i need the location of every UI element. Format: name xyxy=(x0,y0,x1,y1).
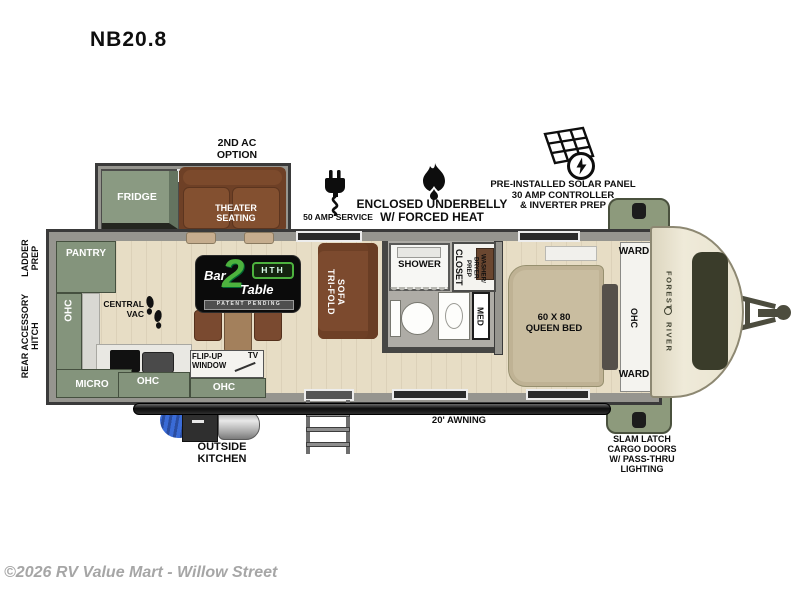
theater-backrest xyxy=(183,170,282,185)
ohc-bottom-label: OHC xyxy=(194,382,254,393)
watermark: ©2026 RV Value Mart - Willow Street xyxy=(4,564,324,582)
entry-step-tread-3 xyxy=(306,442,350,447)
solar-panel-icon xyxy=(531,126,601,182)
shower-label: SHOWER xyxy=(389,260,450,271)
flip-up-window-label: FLIP-UP WINDOW xyxy=(192,353,240,370)
ward-bottom-label: WARD xyxy=(612,369,656,380)
nightstand-top xyxy=(545,246,597,261)
underbelly-label: ENCLOSED UNDERBELLY W/ FORCED HEAT xyxy=(356,198,508,225)
queen-bed-label: 60 X 80 QUEEN BED xyxy=(508,313,600,334)
window-bottom-living xyxy=(392,389,468,400)
tongue-jack-knob xyxy=(776,305,791,320)
theater-label: THEATER SEATING xyxy=(196,203,276,223)
theater-footrest-right xyxy=(244,232,274,244)
plug-icon xyxy=(320,168,350,216)
dinette-chair-left xyxy=(194,310,222,341)
med-label: MED xyxy=(475,298,485,334)
slam-latch-label: SLAM LATCH CARGO DOORS W/ PASS-THRU LIGH… xyxy=(598,434,686,474)
entry-step-tread-2 xyxy=(306,427,350,432)
micro-label: MICRO xyxy=(60,379,124,390)
awning-label: 20' AWNING xyxy=(424,416,494,427)
cargo-door-top-handle xyxy=(632,203,646,219)
bar2table-table: Table xyxy=(240,282,273,297)
window-top-living xyxy=(296,231,362,242)
fridge-label: FRIDGE xyxy=(104,192,170,204)
dinette-chair-right xyxy=(254,310,282,341)
toilet-tank xyxy=(390,300,401,337)
outside-kitchen-handle xyxy=(192,420,204,423)
bar2table-tagline: PATENT PENDING xyxy=(204,300,294,310)
bar2table-hth-badge: HTH xyxy=(252,262,294,279)
washer-dryer-prep-label: WASHER/ DRYER PREP xyxy=(465,245,486,291)
awning-bar xyxy=(133,403,611,415)
outside-kitchen-label: OUTSIDE KITCHEN xyxy=(178,441,266,466)
ohc-step-label: OHC xyxy=(124,376,172,387)
ohc-left-label: OHC xyxy=(63,289,74,333)
page-title: NB20.8 xyxy=(90,28,167,52)
bar2table-logo: Bar 2 Table HTH PATENT PENDING xyxy=(196,256,300,312)
tv-label: TV xyxy=(244,352,262,361)
tri-fold-sofa-label: TRI-FOLD SOFA xyxy=(326,253,346,331)
cargo-door-bottom-handle xyxy=(632,412,646,428)
second-ac-label: 2ND AC OPTION xyxy=(187,138,287,162)
floorplan-page: NB20.8 2ND AC OPTION 50 AMP SERVICE ENCL… xyxy=(0,0,800,600)
footprints-icon xyxy=(144,294,164,334)
bath-sink-basin xyxy=(445,303,463,329)
forest-river-emblem xyxy=(664,307,672,315)
bed-headboard xyxy=(602,284,618,370)
front-window xyxy=(692,252,728,370)
kitchen-sink xyxy=(142,352,174,373)
ohc-bedroom-label: OHC xyxy=(629,300,639,336)
toilet-bowl xyxy=(401,302,434,335)
pantry-label: PANTRY xyxy=(56,248,116,259)
rear-accessory-hitch-label: REAR ACCESSORY HITCH xyxy=(20,286,40,386)
theater-footrest-left xyxy=(186,232,216,244)
ward-top-label: WARD xyxy=(612,246,656,257)
shower-skylight xyxy=(397,247,441,258)
closet-label: CLOSET xyxy=(454,245,464,289)
window-bottom-bedroom xyxy=(526,389,590,400)
central-vac-label: CENTRAL VAC xyxy=(100,300,144,319)
shower-curtain xyxy=(390,287,448,294)
hitch-crossbar xyxy=(745,300,750,327)
window-top-bedroom xyxy=(518,231,580,242)
